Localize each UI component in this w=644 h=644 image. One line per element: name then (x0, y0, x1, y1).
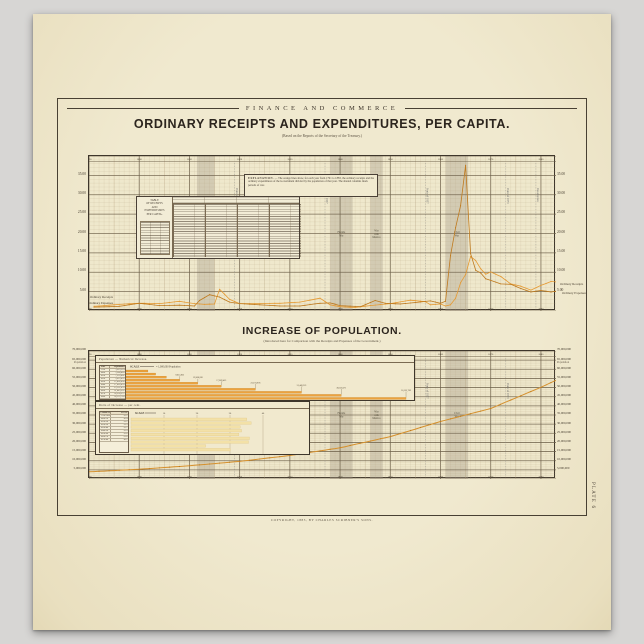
scale-tick-label: 30 (229, 412, 232, 415)
population-bar (126, 397, 406, 399)
receipts-label-left: Ordinary Receipts (37, 295, 113, 299)
data-table-group (237, 204, 269, 257)
svg-text:1790: 1790 (89, 476, 92, 479)
population-bar (126, 370, 148, 372)
axis-tick-label: 20.00 (78, 231, 86, 235)
svg-text:1820: 1820 (237, 476, 243, 479)
population-bar (126, 391, 302, 393)
ratio-increase-inset: Ratio of Increase — per cent. Census Yea… (95, 401, 310, 455)
axis-tick-label: 45,000,000 (72, 394, 86, 398)
axis-tick-label: 65,000,000Population (557, 358, 571, 365)
axis-tick-label: 10,000,000 (557, 458, 571, 462)
running-head: FINANCE AND COMMERCE (57, 102, 587, 114)
axis-tick-label: 60,000,000 (557, 367, 571, 371)
svg-text:1860: 1860 (438, 158, 444, 161)
expenses-label-right: Ordinary Expenses (562, 291, 586, 295)
numerical-increase-inset: Population — Numerical Increase. YearPop… (95, 355, 415, 401)
axis-sub-label: Population (557, 361, 571, 365)
axis-tick-label: 60,000,000 (72, 367, 86, 371)
page-subtitle: (Based on the Reports of the Secretary o… (57, 134, 587, 138)
axis-tick-label: 20.00 (557, 231, 565, 235)
axis-tick-label: 55,000,000 (72, 376, 86, 380)
svg-text:Panic of 1873: Panic of 1873 (506, 188, 509, 204)
axis-tick-label: 15,000,000 (72, 449, 86, 453)
svg-text:1870: 1870 (488, 476, 494, 479)
ratio-bar (131, 418, 247, 421)
svg-text:1790: 1790 (89, 308, 92, 311)
axis-tick-label: 35.00 (78, 173, 86, 177)
axis-tick-label: 40,000,000 (72, 403, 86, 407)
svg-text:1870: 1870 (488, 353, 494, 356)
running-head-rule-right (405, 108, 577, 109)
per-capita-axis-left: 35.0030.0025.0020.0015.0010.005.00 (53, 155, 86, 310)
scale-tick-label: 20 (196, 412, 199, 415)
svg-text:1840: 1840 (338, 158, 344, 161)
inset1-header: Population — Numerical Increase. (96, 356, 414, 363)
axis-tick-label: 35,000,000 (72, 412, 86, 416)
scale-tick-label: 40 (262, 412, 265, 415)
svg-text:1840: 1840 (338, 476, 344, 479)
svg-text:1860: 1860 (438, 353, 444, 356)
svg-text:1870: 1870 (488, 158, 494, 161)
axis-tick-label: 65,000,000Population (72, 358, 86, 365)
svg-text:1880: 1880 (538, 158, 544, 161)
population-bar (126, 385, 221, 387)
svg-text:1790: 1790 (89, 158, 92, 161)
axis-tick-label: 55,000,000 (557, 376, 571, 380)
running-head-label: FINANCE AND COMMERCE (246, 105, 398, 112)
svg-text:Panic of 1857: Panic of 1857 (426, 383, 429, 399)
axis-tick-label: 50,000,000 (557, 385, 571, 389)
series-ordinary-receipts (93, 256, 556, 308)
axis-tick-label: 10.00 (78, 269, 86, 273)
scale-tick-label: 10 (163, 412, 166, 415)
data-table-group (173, 204, 205, 257)
axis-tick-label: 30,000,000 (557, 422, 571, 426)
svg-text:1830: 1830 (287, 308, 293, 311)
svg-text:1880: 1880 (538, 308, 544, 311)
ratio-bar (131, 426, 240, 429)
svg-text:1870: 1870 (488, 308, 494, 311)
copyright-line: COPYRIGHT, 1883, BY CHARLES SCRIBNER'S S… (57, 518, 587, 522)
svg-text:1820: 1820 (237, 158, 243, 161)
svg-text:1860: 1860 (438, 308, 444, 311)
svg-text:SCALE: SCALE (135, 412, 144, 415)
axis-tick-label: 25.00 (557, 211, 565, 215)
svg-text:1810: 1810 (187, 308, 193, 311)
ratio-bar (131, 422, 251, 425)
data-table-subtable (140, 221, 170, 255)
axis-tick-label: 70,000,000 (72, 348, 86, 352)
svg-text:1860: 1860 (438, 476, 444, 479)
ratio-bar (131, 448, 230, 451)
population-bar (126, 388, 255, 390)
axis-tick-label: 5,000,000 (74, 467, 86, 471)
ratio-bar-chart: SCALE10203040 (96, 409, 309, 455)
inset2-header: Ratio of Increase — per cent. (96, 402, 309, 409)
svg-text:1800: 1800 (137, 476, 143, 479)
svg-text:1800: 1800 (137, 158, 143, 161)
population-axis-right: 70,000,00065,000,000Population60,000,000… (557, 350, 607, 478)
receipts-label-right: Ordinary Receipts (560, 282, 583, 286)
ratio-bar (131, 441, 248, 444)
page-title: ORDINARY RECEIPTS AND EXPENDITURES, PER … (57, 117, 587, 131)
axis-tick-label: 5,000,000 (557, 467, 569, 471)
axis-tick-label: 30.00 (78, 192, 86, 196)
ratio-bar (131, 429, 242, 432)
axis-tick-label: 25,000,000 (557, 431, 571, 435)
svg-text:1850: 1850 (388, 308, 394, 311)
population-bar (126, 382, 198, 384)
svg-text:1850: 1850 (388, 158, 394, 161)
data-table-column-headers (173, 197, 299, 204)
bar-value-label: 31,443,321 (297, 385, 307, 387)
svg-text:1880: 1880 (538, 353, 544, 356)
expenses-label-left: Ordinary Expenses (37, 301, 113, 305)
bar-value-label: 50,155,783 (401, 390, 412, 392)
bar-value-label: 38,558,371 (336, 387, 346, 389)
axis-tick-label: 15,000,000 (557, 449, 571, 453)
axis-tick-label: 25,000,000 (72, 431, 86, 435)
svg-text:Panic of 1873: Panic of 1873 (506, 383, 509, 399)
bar-value-label: 9,633,822 (175, 375, 184, 377)
population-bar-chart: SCALE= 1,000,000 Population9,633,82212,8… (96, 363, 414, 401)
svg-text:Resumption: Resumption (536, 188, 539, 202)
poster: FINANCE AND COMMERCE ORDINARY RECEIPTS A… (33, 14, 611, 630)
axis-tick-label: 25.00 (78, 211, 86, 215)
axis-sub-label: Population (72, 361, 86, 365)
axis-tick-label: 70,000,000 (557, 348, 571, 352)
svg-text:SCALE: SCALE (130, 366, 139, 369)
axis-tick-label: 10,000,000 (72, 458, 86, 462)
bar-value-label: 12,866,020 (193, 377, 204, 379)
axis-tick-label: 35,000,000 (557, 412, 571, 416)
population-bar (126, 394, 341, 396)
svg-text:1850: 1850 (388, 476, 394, 479)
svg-text:1880: 1880 (538, 476, 544, 479)
svg-text:1820: 1820 (237, 308, 243, 311)
data-table-title-line: PER CAPITA. (137, 213, 172, 216)
ratio-bar (131, 445, 206, 448)
population-bar (126, 379, 180, 381)
running-head-rule-left (67, 108, 239, 109)
axis-tick-label: 35.00 (557, 173, 565, 177)
axis-tick-label: 30.00 (557, 192, 565, 196)
per-capita-axis-right: 35.0030.0025.0020.0015.0010.005.00 (557, 155, 601, 310)
svg-text:1800: 1800 (137, 308, 143, 311)
population-bar (126, 373, 156, 375)
population-axis-left: 70,000,00065,000,000Population60,000,000… (52, 350, 86, 478)
ratio-bar (131, 437, 249, 440)
axis-tick-label: 20,000,000 (72, 440, 86, 444)
axis-tick-label: 30,000,000 (72, 422, 86, 426)
axis-tick-label: 15.00 (78, 250, 86, 254)
axis-tick-label: 15.00 (557, 250, 565, 254)
svg-text:1840: 1840 (338, 308, 344, 311)
axis-tick-label: 20,000,000 (557, 440, 571, 444)
data-table-group (205, 204, 237, 257)
svg-text:Panic of 1857: Panic of 1857 (426, 188, 429, 204)
population-bar (126, 376, 166, 378)
per-capita-data-table: TABLEOF RECEIPTSANDEXPENDITURESPER CAPIT… (136, 196, 300, 259)
bar-value-label: 23,191,876 (251, 382, 262, 384)
axis-tick-label: 45,000,000 (557, 394, 571, 398)
axis-tick-label: 5.00 (80, 289, 86, 293)
plate-number: PLATE 6 (590, 482, 595, 509)
svg-text:1810: 1810 (187, 476, 193, 479)
axis-tick-label: 10.00 (557, 269, 565, 273)
svg-text:1830: 1830 (287, 476, 293, 479)
svg-text:1810: 1810 (187, 158, 193, 161)
explanation-box: EXPLANATION. — The orange lines show, fo… (244, 174, 378, 197)
section-title: INCREASE OF POPULATION. (57, 325, 587, 337)
bar-value-label: 17,069,453 (216, 380, 227, 382)
axis-tick-label: 50,000,000 (72, 385, 86, 389)
ratio-bar (131, 433, 239, 436)
svg-text:= 1,000,000 Population: = 1,000,000 Population (156, 366, 181, 369)
axis-tick-label: 40,000,000 (557, 403, 571, 407)
data-table-group (269, 204, 301, 257)
section-subtitle: (Introduced here for Comparison with the… (57, 339, 587, 343)
svg-text:1830: 1830 (287, 158, 293, 161)
